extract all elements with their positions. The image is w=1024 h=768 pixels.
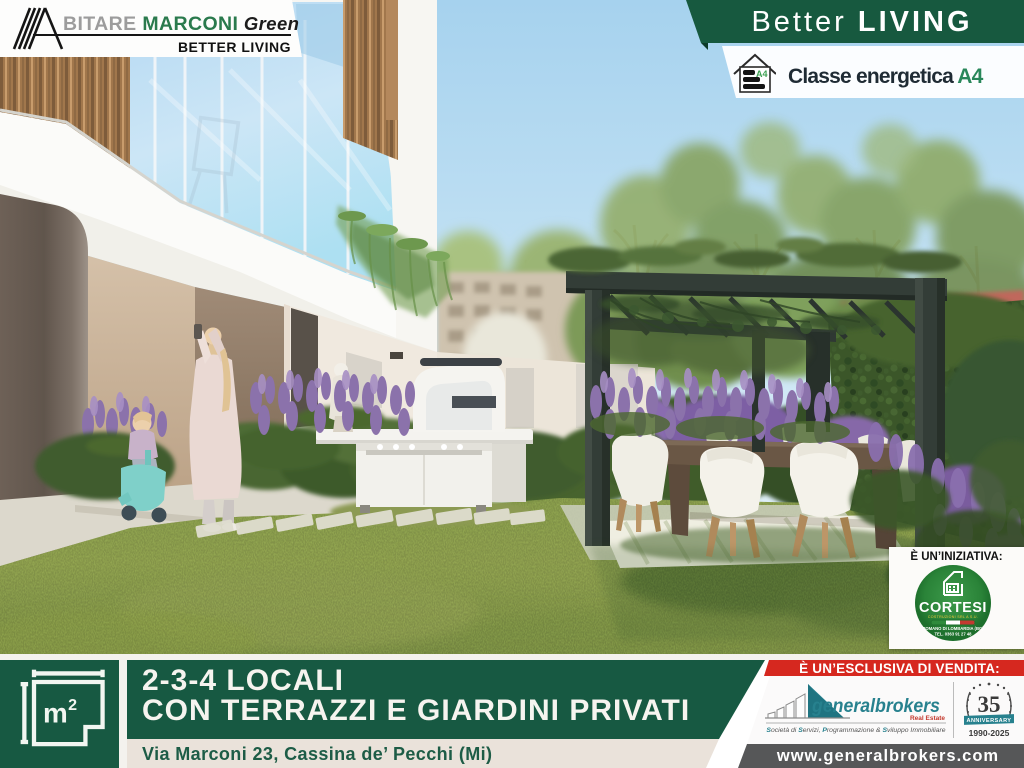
svg-text:generalbrokers: generalbrokers [811,696,940,717]
svg-text:COSTRUZIONI SRL A S.U.: COSTRUZIONI SRL A S.U. [928,615,978,619]
svg-text:Società di Servizi, Programmaz: Società di Servizi, Programmazione & Svi… [766,727,945,734]
svg-text:CORTESI: CORTESI [919,600,987,616]
svg-text:35: 35 [978,692,1001,717]
svg-text:ROMANO DI LOMBARDIA (BG): ROMANO DI LOMBARDIA (BG) [922,626,984,631]
svg-text:m: m [43,698,68,729]
svg-text:TEL. 0363 91 27 48: TEL. 0363 91 27 48 [934,632,972,637]
svg-text:Real Estate: Real Estate [910,715,945,722]
svg-text:ANNIVERSARY: ANNIVERSARY [967,718,1012,724]
svg-text:1990-2025: 1990-2025 [969,728,1010,738]
svg-text:A4: A4 [756,69,768,79]
svg-text:2: 2 [68,696,77,714]
